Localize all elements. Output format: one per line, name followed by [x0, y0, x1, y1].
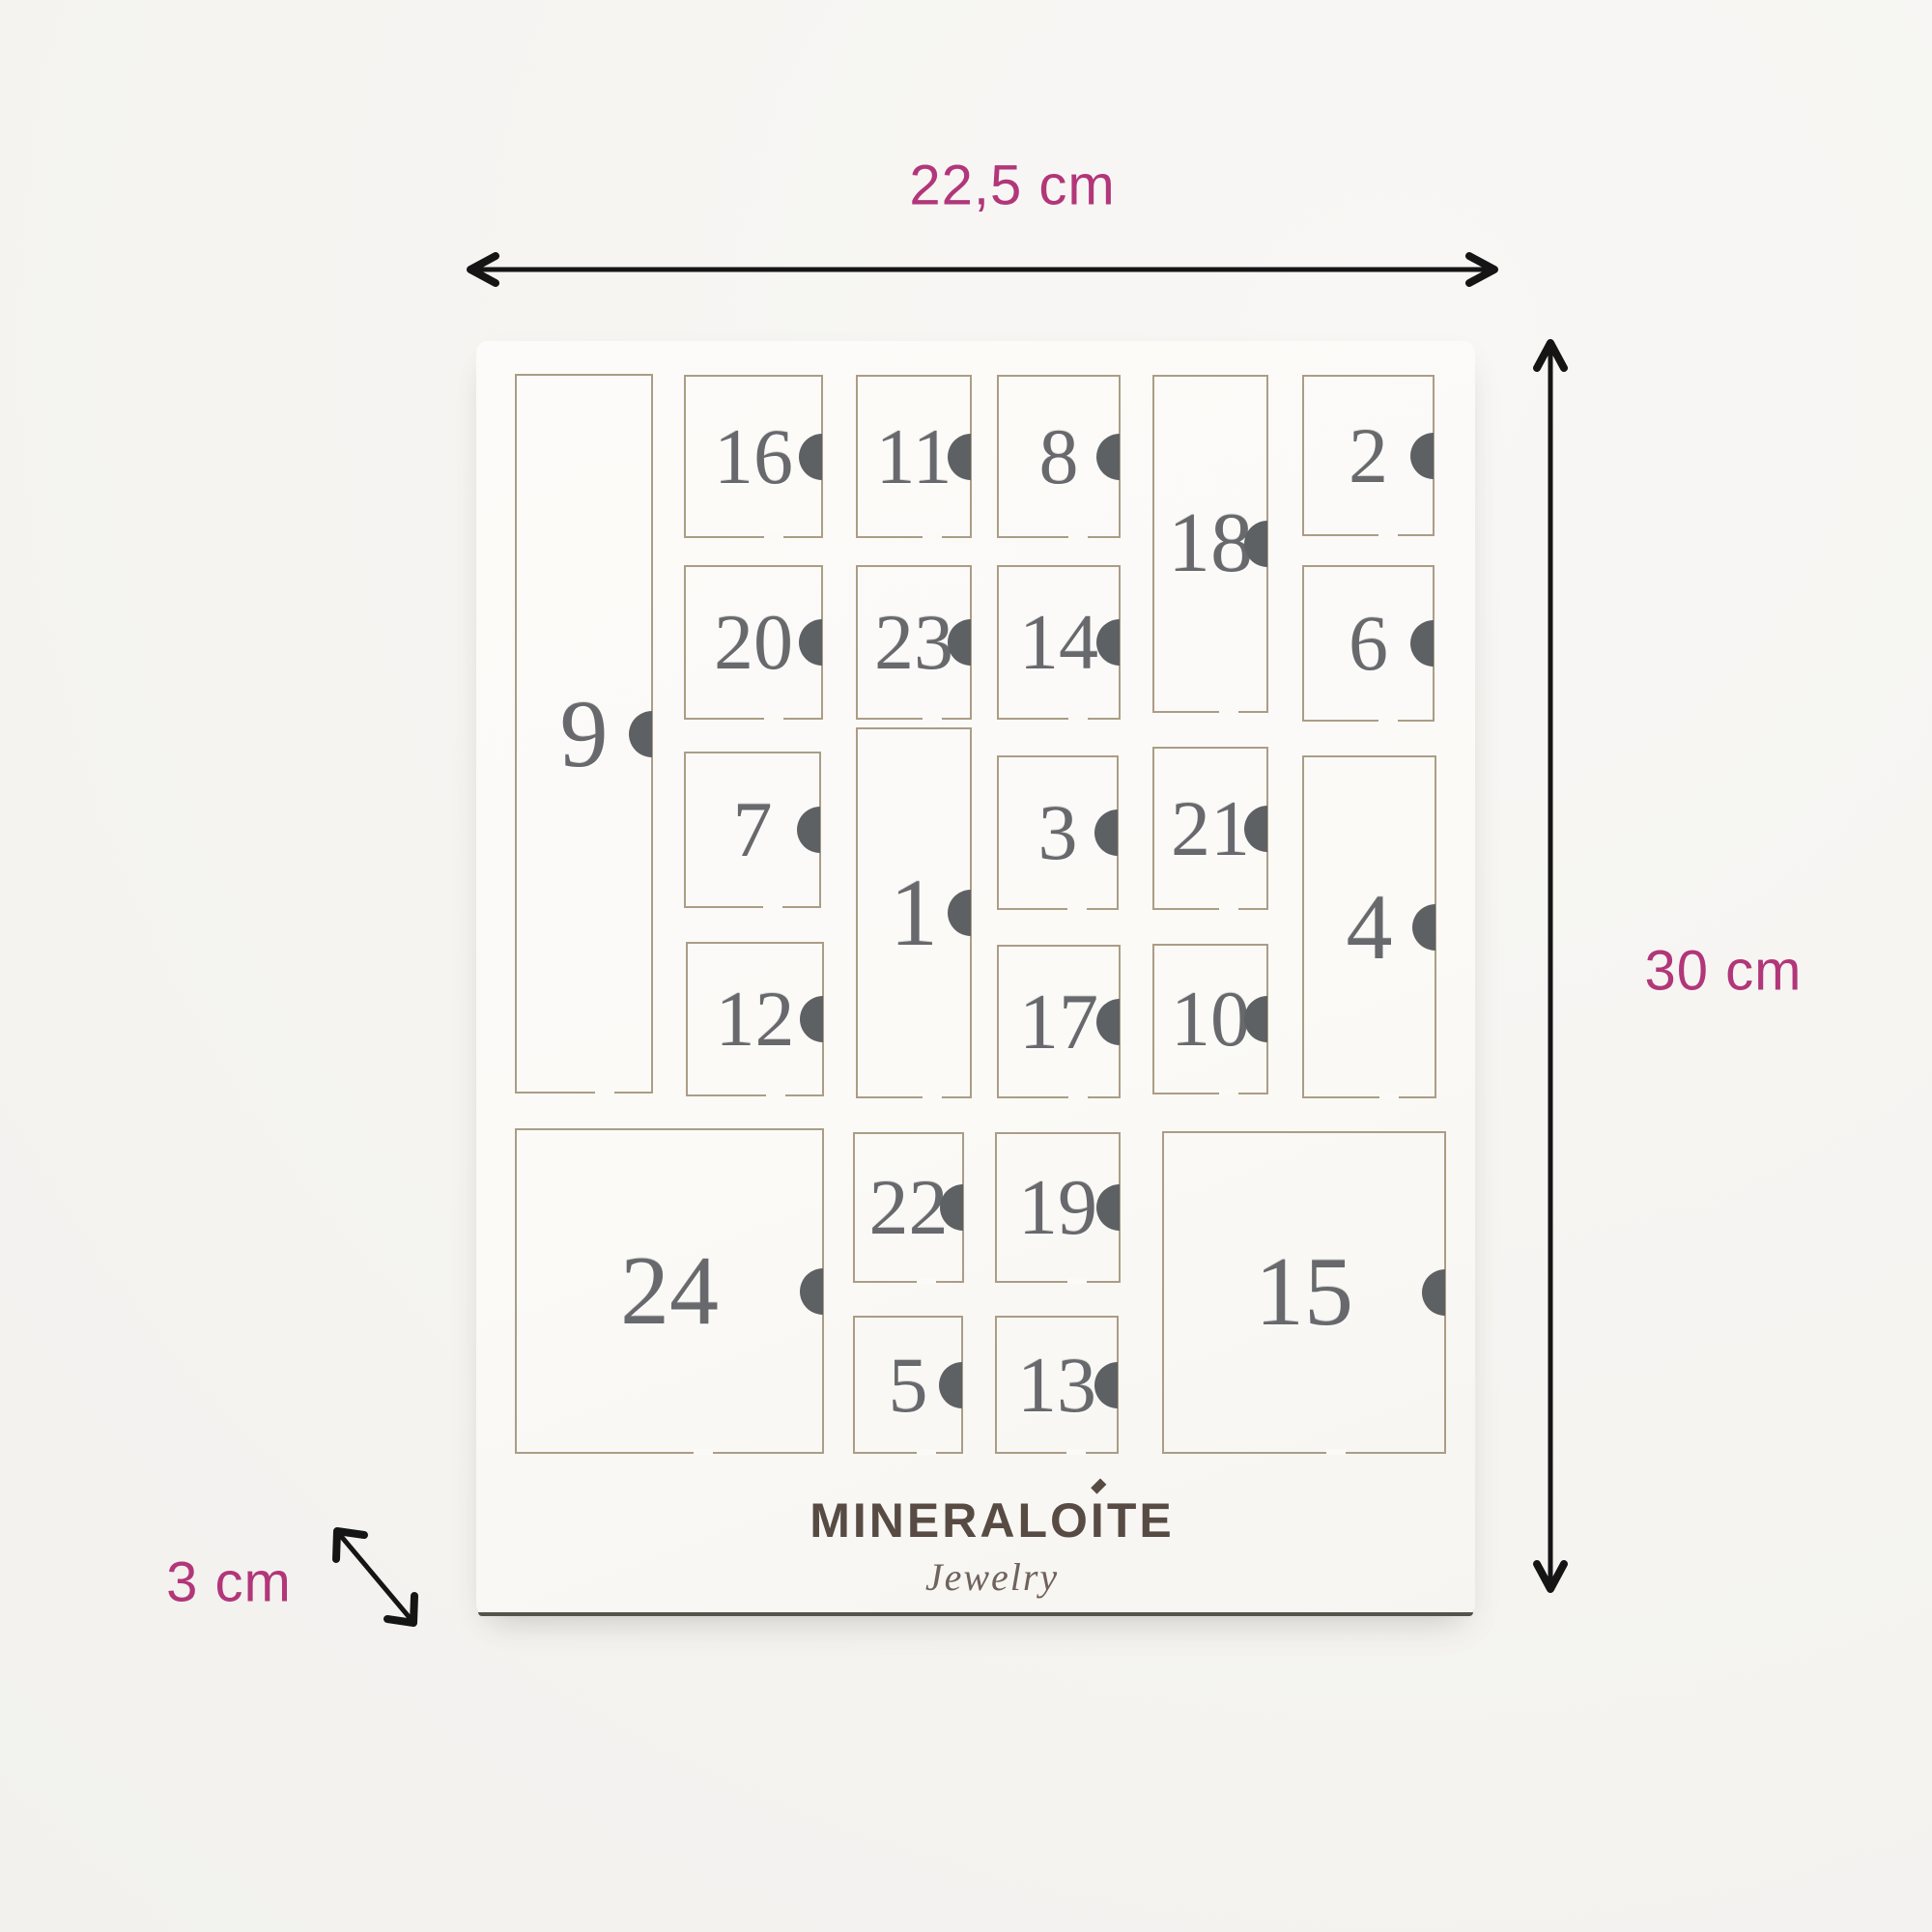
- door-number: 8: [1039, 417, 1079, 497]
- door-number: 15: [1255, 1243, 1353, 1342]
- door-notch-icon: [1096, 619, 1120, 666]
- door-number: 18: [1168, 501, 1253, 586]
- depth-dimension-label: 3 cm: [166, 1550, 292, 1615]
- calendar-box: 13 5 15 19 22 24 10 17 12 4 21 3 1 7: [476, 341, 1475, 1616]
- door-number: 1: [890, 865, 938, 961]
- door-notch-icon: [797, 807, 820, 853]
- door-11: 11: [856, 375, 972, 538]
- door-notch-icon: [939, 1362, 962, 1408]
- brand-name-part1: MINERALO: [810, 1493, 1091, 1548]
- door-2: 2: [1302, 375, 1435, 536]
- door-8: 8: [997, 375, 1121, 538]
- door-notch-icon: [1094, 1362, 1118, 1408]
- door-1: 1: [856, 727, 972, 1098]
- door-21: 21: [1152, 747, 1268, 910]
- door-notch-icon: [1422, 1269, 1445, 1316]
- door-notch-icon: [1410, 620, 1434, 667]
- door-17: 17: [997, 945, 1121, 1098]
- door-number: 21: [1171, 789, 1250, 868]
- height-dimension-label: 30 cm: [1645, 939, 1803, 1004]
- brand-logo: MINERALOITE Jewelry: [810, 1496, 1174, 1600]
- door-5: 5: [853, 1316, 963, 1454]
- door-23: 23: [856, 565, 972, 720]
- door-notch-icon: [799, 434, 822, 480]
- box-bottom-edge: [478, 1612, 1473, 1616]
- door-notch-icon: [1096, 1184, 1120, 1231]
- door-number: 3: [1038, 793, 1078, 872]
- door-12: 12: [686, 942, 824, 1096]
- door-9: 9: [515, 374, 653, 1094]
- brand-name-part2: TE: [1107, 1493, 1175, 1548]
- door-number: 14: [1019, 603, 1098, 682]
- door-19: 19: [995, 1132, 1121, 1283]
- door-number: 10: [1171, 980, 1250, 1059]
- door-number: 2: [1349, 416, 1388, 496]
- door-number: 9: [560, 686, 609, 782]
- door-number: 12: [716, 980, 795, 1059]
- door-notch-icon: [800, 1268, 823, 1315]
- door-number: 19: [1018, 1168, 1097, 1247]
- door-14: 14: [997, 565, 1121, 720]
- door-number: 20: [714, 603, 793, 682]
- width-arrow: [461, 249, 1504, 290]
- door-18: 18: [1152, 375, 1268, 713]
- door-13: 13: [995, 1316, 1119, 1454]
- door-number: 22: [869, 1168, 949, 1247]
- door-10: 10: [1152, 944, 1268, 1094]
- door-notch-icon: [1410, 433, 1434, 479]
- door-number: 23: [874, 603, 953, 682]
- door-number: 16: [714, 417, 793, 497]
- door-notch-icon: [1094, 810, 1118, 856]
- door-notch-icon: [1096, 434, 1120, 480]
- door-number: 24: [620, 1242, 719, 1341]
- brand-tagline: Jewelry: [810, 1554, 1174, 1600]
- door-number: 17: [1019, 982, 1098, 1062]
- door-number: 11: [876, 417, 952, 497]
- height-arrow: [1530, 333, 1571, 1599]
- brand-name: MINERALOITE: [810, 1496, 1174, 1545]
- door-3: 3: [997, 755, 1119, 910]
- diamond-icon: [1091, 1478, 1106, 1493]
- door-22: 22: [853, 1132, 964, 1283]
- depth-arrow: [327, 1522, 423, 1631]
- door-number: 13: [1017, 1346, 1096, 1425]
- door-20: 20: [684, 565, 823, 720]
- door-number: 6: [1349, 604, 1388, 683]
- door-15: 15: [1162, 1131, 1446, 1454]
- door-notch-icon: [1412, 904, 1435, 951]
- door-6: 6: [1302, 565, 1435, 722]
- door-number: 5: [889, 1346, 928, 1425]
- door-notch-icon: [629, 711, 652, 757]
- door-16: 16: [684, 375, 823, 538]
- door-4: 4: [1302, 755, 1436, 1098]
- door-7: 7: [684, 752, 821, 908]
- door-notch-icon: [1096, 999, 1120, 1045]
- door-number: 4: [1347, 881, 1393, 974]
- width-dimension-label: 22,5 cm: [909, 154, 1115, 218]
- door-24: 24: [515, 1128, 824, 1454]
- brand-letter-i: I: [1091, 1496, 1107, 1545]
- door-notch-icon: [799, 619, 822, 666]
- door-notch-icon: [948, 890, 971, 936]
- product-dimension-diagram: 22,5 cm 30 cm 3 cm 13 5 15 19: [0, 0, 1932, 1932]
- door-number: 7: [733, 790, 773, 869]
- door-notch-icon: [800, 996, 823, 1042]
